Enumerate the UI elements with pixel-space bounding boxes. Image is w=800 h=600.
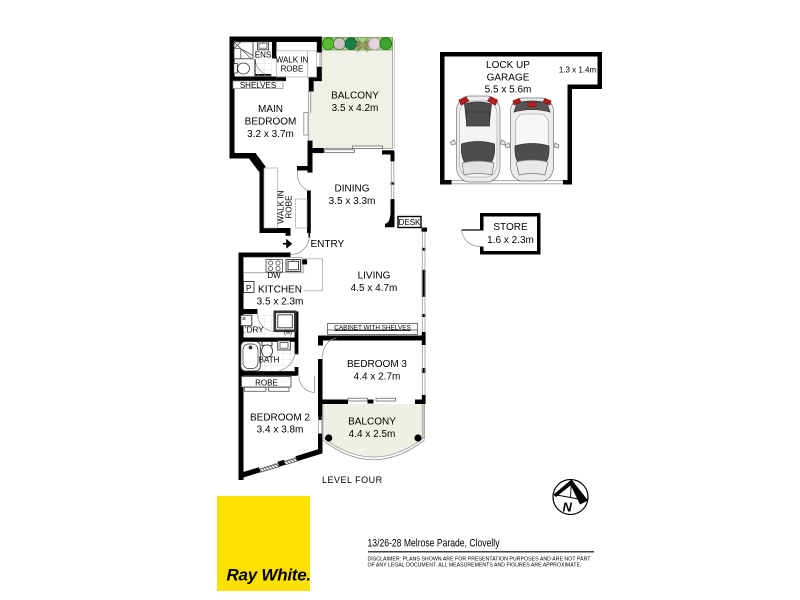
svg-text:SHELVES: SHELVES: [240, 81, 276, 90]
svg-text:DINING: DINING: [335, 184, 370, 195]
svg-text:LOCK UP: LOCK UP: [486, 60, 530, 71]
svg-text:3.5 x 4.2m: 3.5 x 4.2m: [332, 103, 379, 114]
svg-text:STORE: STORE: [493, 222, 528, 233]
svg-text:N: N: [563, 500, 573, 515]
svg-text:BEDROOM 2: BEDROOM 2: [250, 413, 310, 424]
svg-text:L'DRY: L'DRY: [241, 326, 265, 335]
svg-text:ENTRY: ENTRY: [311, 239, 345, 250]
svg-text:KITCHEN: KITCHEN: [258, 285, 302, 296]
svg-text:DESK: DESK: [399, 218, 421, 227]
svg-text:MAIN: MAIN: [258, 104, 283, 115]
svg-text:BALCONY: BALCONY: [348, 417, 396, 428]
svg-text:ENS: ENS: [255, 51, 271, 60]
svg-text:BEDROOM 3: BEDROOM 3: [347, 359, 407, 370]
svg-text:OF ANY LEGAL DOCUMENT. ALL MEA: OF ANY LEGAL DOCUMENT. ALL MEASUREMENTS …: [368, 562, 582, 568]
svg-text:GARAGE: GARAGE: [487, 73, 530, 84]
svg-text:1.3 x 1.4m: 1.3 x 1.4m: [559, 66, 597, 75]
svg-text:LIVING: LIVING: [358, 271, 391, 282]
svg-text:LEVEL FOUR: LEVEL FOUR: [322, 475, 383, 485]
svg-text:3.4 x 3.8m: 3.4 x 3.8m: [257, 425, 304, 436]
svg-text:1.6 x 2.3m: 1.6 x 2.3m: [487, 235, 534, 246]
svg-text:BEDROOM: BEDROOM: [245, 117, 297, 128]
svg-text:3.5 x 3.3m: 3.5 x 3.3m: [329, 196, 376, 207]
svg-text:5.5 x 5.6m: 5.5 x 5.6m: [485, 85, 532, 96]
svg-text:4.4 x 2.7m: 4.4 x 2.7m: [354, 372, 401, 383]
svg-text:Ray White.: Ray White.: [227, 566, 311, 585]
svg-text:ROBE: ROBE: [285, 195, 294, 219]
svg-text:13/26-28 Melrose Parade, Clove: 13/26-28 Melrose Parade, Clovelly: [368, 538, 500, 550]
svg-text:4.4 x 2.5m: 4.4 x 2.5m: [349, 429, 396, 440]
svg-text:CABINET WITH SHELVES: CABINET WITH SHELVES: [334, 324, 410, 331]
svg-text:ROBE: ROBE: [255, 378, 278, 387]
svg-text:4.5 x 4.7m: 4.5 x 4.7m: [351, 283, 398, 294]
svg-text:DW: DW: [267, 271, 281, 280]
svg-text:(w): (w): [284, 330, 292, 336]
svg-text:3.5 x 2.3m: 3.5 x 2.3m: [257, 297, 304, 308]
svg-text:P: P: [246, 284, 251, 293]
svg-text:ROBE: ROBE: [281, 65, 304, 74]
svg-text:WALK IN: WALK IN: [276, 56, 309, 65]
svg-text:3.2 x 3.7m: 3.2 x 3.7m: [247, 129, 294, 140]
svg-text:BATH: BATH: [259, 356, 280, 365]
svg-text:BALCONY: BALCONY: [331, 91, 379, 102]
